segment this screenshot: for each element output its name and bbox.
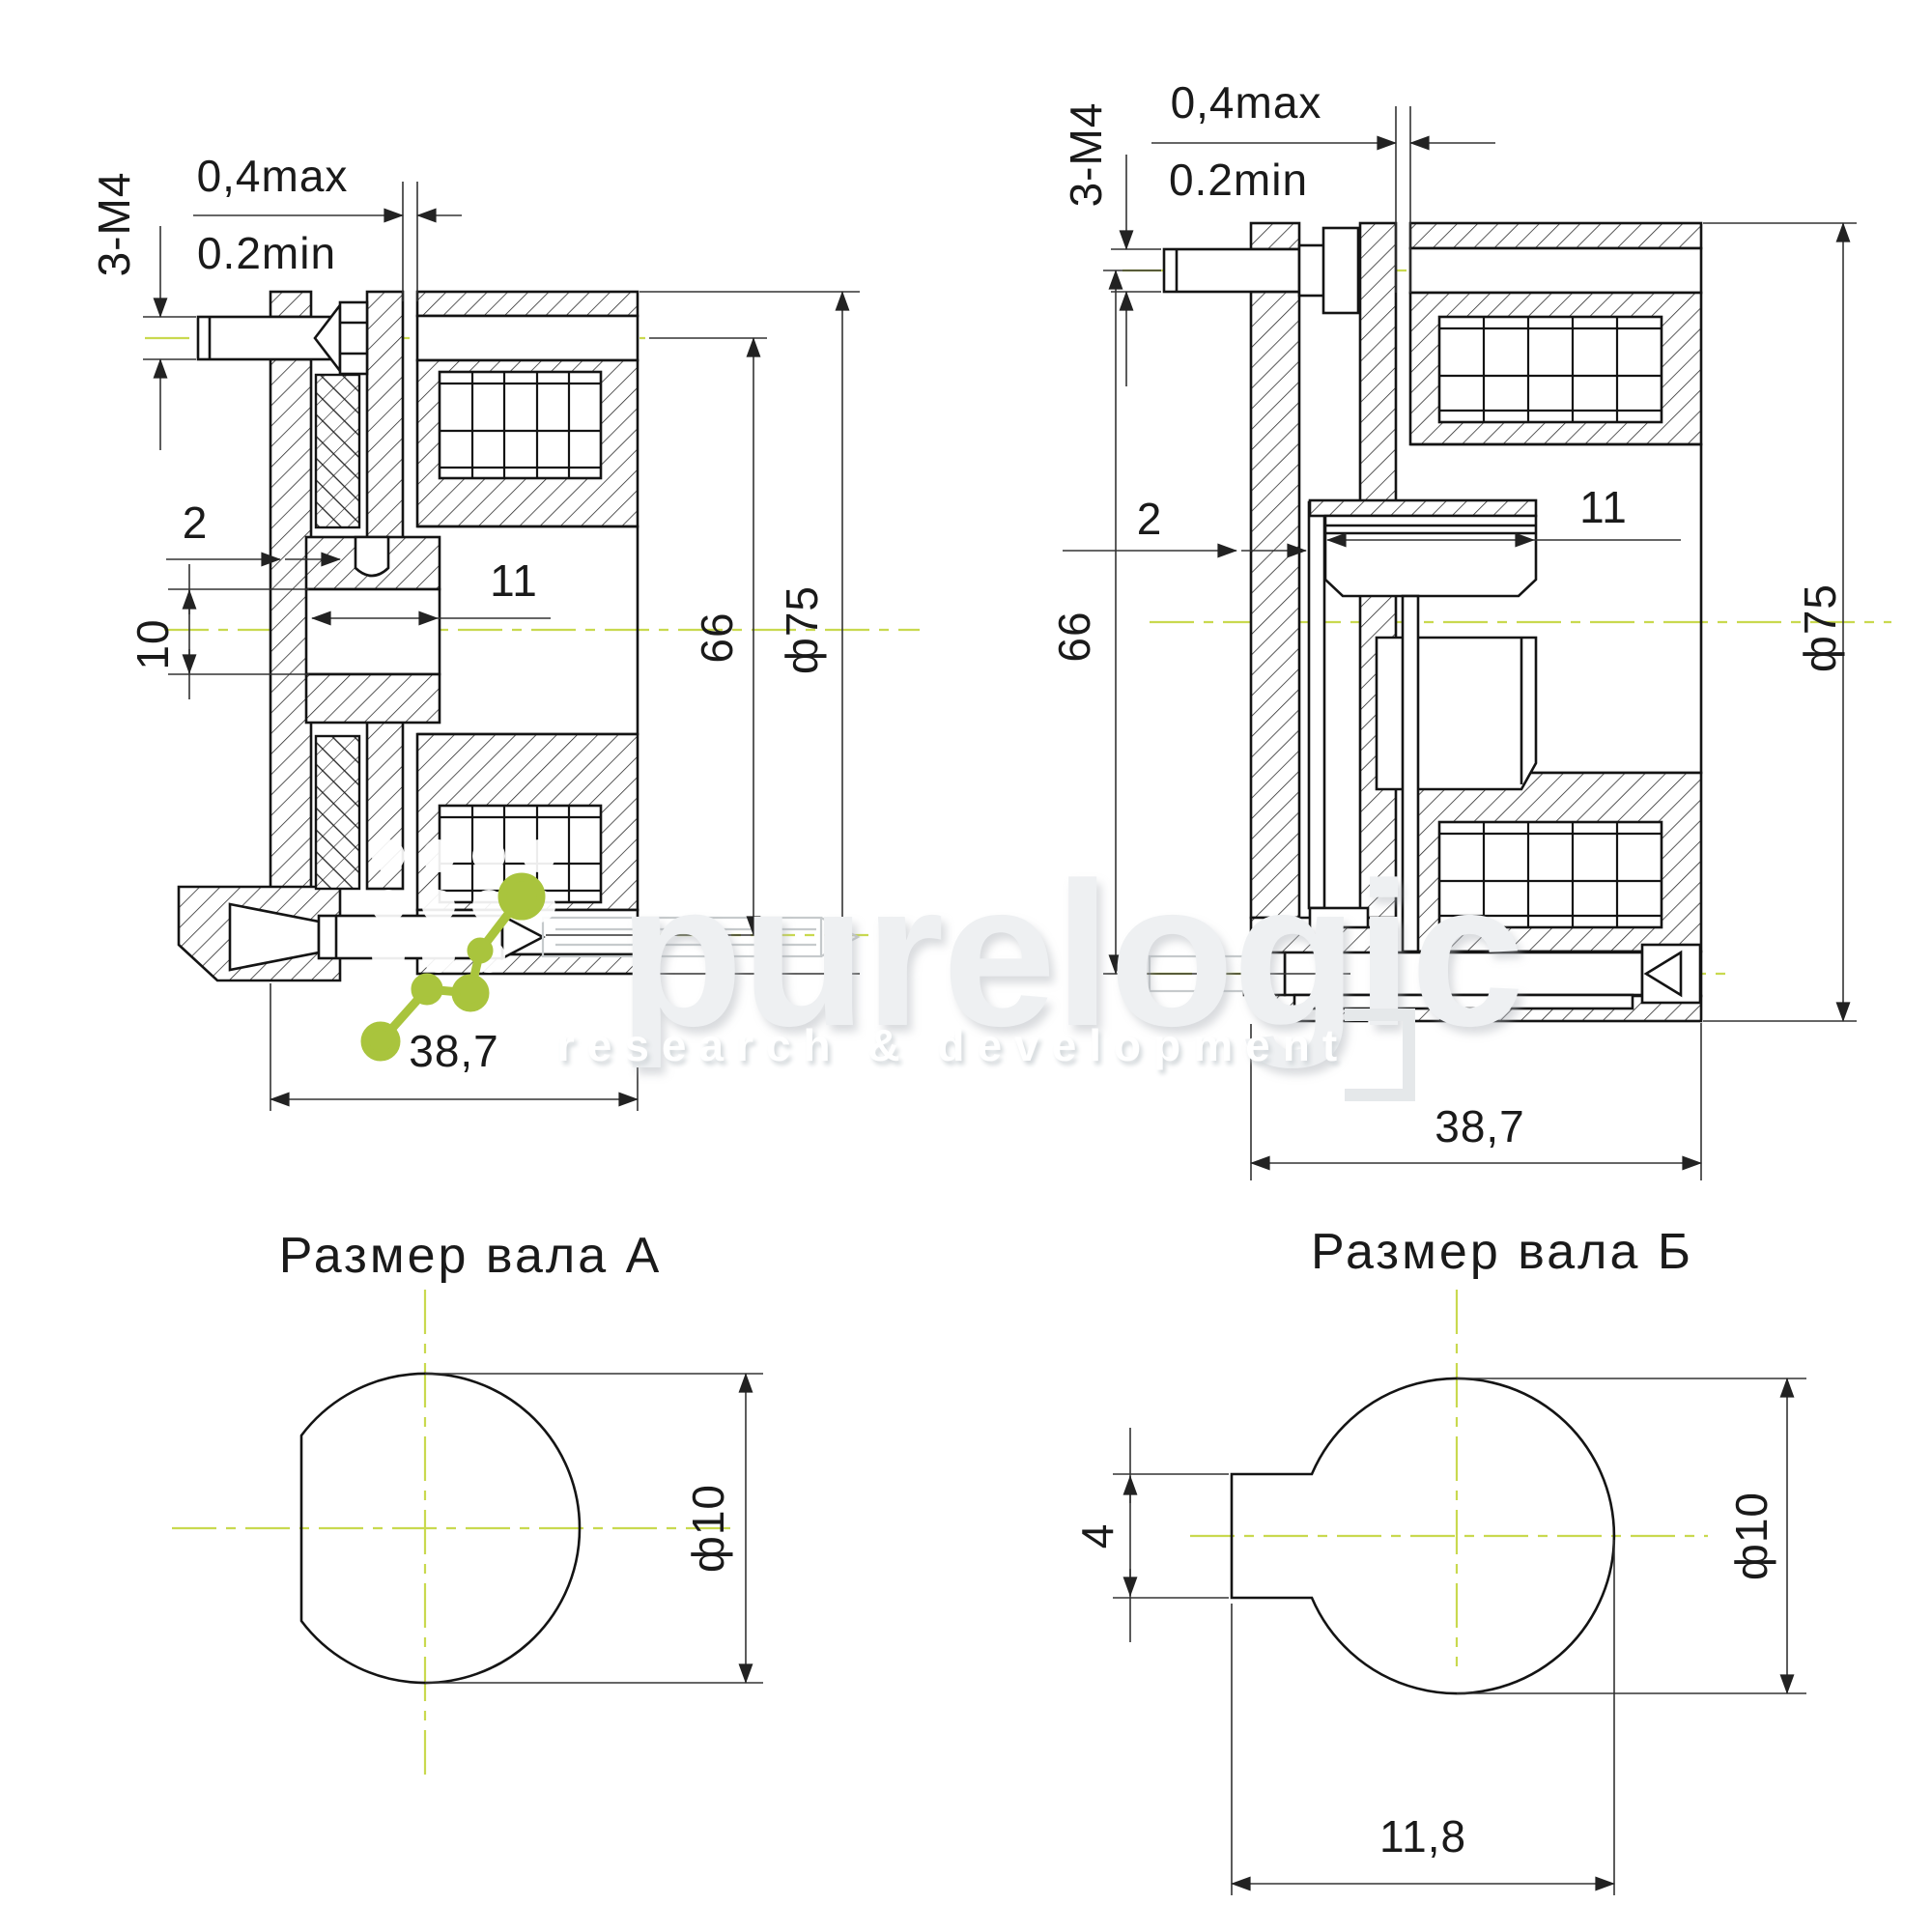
dim-bolt-circle-a: 66 [695, 611, 739, 663]
dim-shaft-dia-b: ф10 [1729, 1492, 1774, 1580]
body-top-band [1410, 223, 1701, 248]
top-screw-head [340, 302, 367, 374]
shaft-view-b [1113, 1290, 1806, 1895]
dim-disc-a: 2 [183, 500, 209, 545]
hub-lower-block [1377, 638, 1536, 789]
dim-outer-dia-b: ф75 [1798, 583, 1842, 672]
hub-upper-block [1325, 516, 1536, 596]
dim-air-gap-min-b: 0.2min [1169, 157, 1308, 202]
watermark-tagline: research & development [557, 1019, 1350, 1071]
dim-key-width-b: 4 [1075, 1523, 1120, 1549]
dim-bore-a: 10 [130, 618, 175, 669]
air-gap-extension-lines [403, 182, 417, 301]
elastomer-upper [316, 375, 359, 527]
coil-winding-top [1439, 317, 1662, 422]
flange-top [270, 292, 311, 317]
air-gap-extension-lines [1396, 106, 1410, 293]
hub-screw-slot [355, 537, 388, 576]
hub-bore [306, 589, 440, 674]
top-screw-head-cone [315, 305, 340, 371]
shaft-view-a [172, 1290, 763, 1776]
dim-air-gap-max-a: 0,4max [197, 154, 349, 198]
dim-disc-b: 2 [1137, 497, 1163, 541]
coil-winding-top [440, 372, 601, 478]
dim-shaft-dia-a: ф10 [686, 1484, 730, 1573]
dim-air-gap-min-a: 0.2min [197, 231, 336, 275]
hub-top-plate [1310, 500, 1536, 516]
flange-top [1251, 223, 1299, 249]
engineering-drawing-page: 0,4max 0.2min 3-М4 2 10 11 66 ф75 38,7 0… [0, 0, 1932, 1932]
dim-hub-a: 11 [490, 558, 538, 603]
top-screw-shaft [1164, 249, 1299, 292]
dim-flat-length-b: 11,8 [1379, 1814, 1466, 1859]
dim-screws-a: 3-М4 [92, 172, 136, 277]
logo-green-nodes [357, 865, 560, 1077]
bottom-screw-head [1642, 945, 1700, 1003]
top-screw-channel [417, 316, 638, 360]
top-screw-nut [1299, 245, 1325, 296]
top-screw-channel [1410, 248, 1701, 293]
watermark-logo-mark [1345, 1009, 1415, 1101]
elastomer-lower [316, 736, 359, 889]
shaft-b-title: Размер вала Б [1311, 1227, 1693, 1277]
top-screw-washer [1323, 228, 1358, 313]
dim-air-gap-max-b: 0,4max [1171, 80, 1322, 125]
body-top-band [417, 292, 638, 316]
dim-outer-dia-a: ф75 [780, 585, 824, 674]
dim-screws-b: 3-М4 [1064, 102, 1108, 208]
dim-bolt-circle-b: 66 [1052, 611, 1096, 662]
shaft-a-title: Размер вала А [279, 1231, 663, 1281]
flange-plate [1251, 292, 1299, 918]
dim-hub-b: 11 [1579, 485, 1628, 529]
hub-bottom-cap [306, 674, 440, 723]
dim-length-b: 38,7 [1435, 1104, 1525, 1149]
